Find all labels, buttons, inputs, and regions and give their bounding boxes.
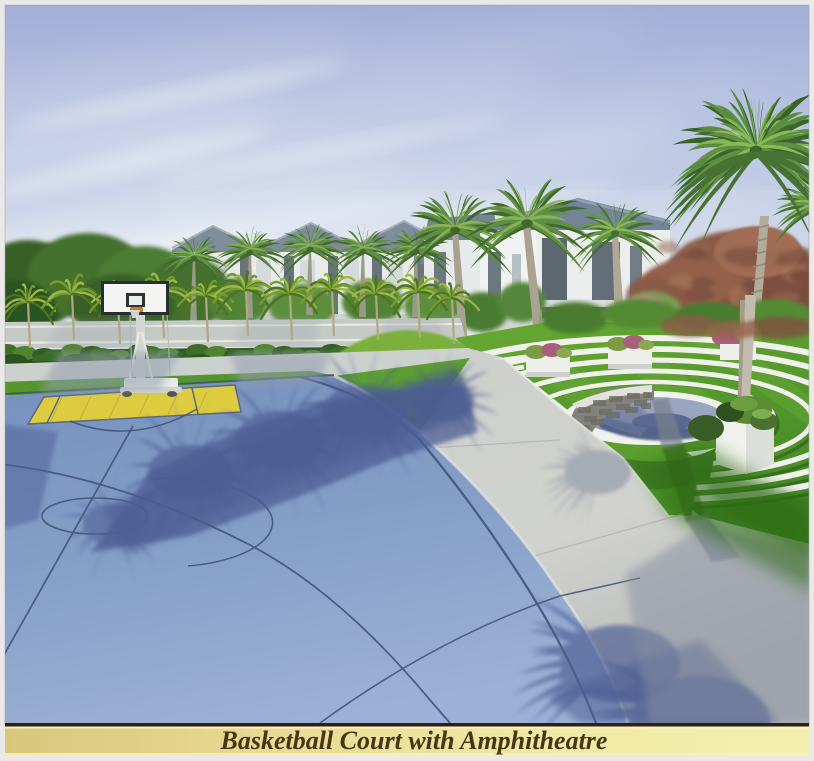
- svg-text:Basketball Court with Amphithe: Basketball Court with Amphitheatre: [220, 726, 608, 755]
